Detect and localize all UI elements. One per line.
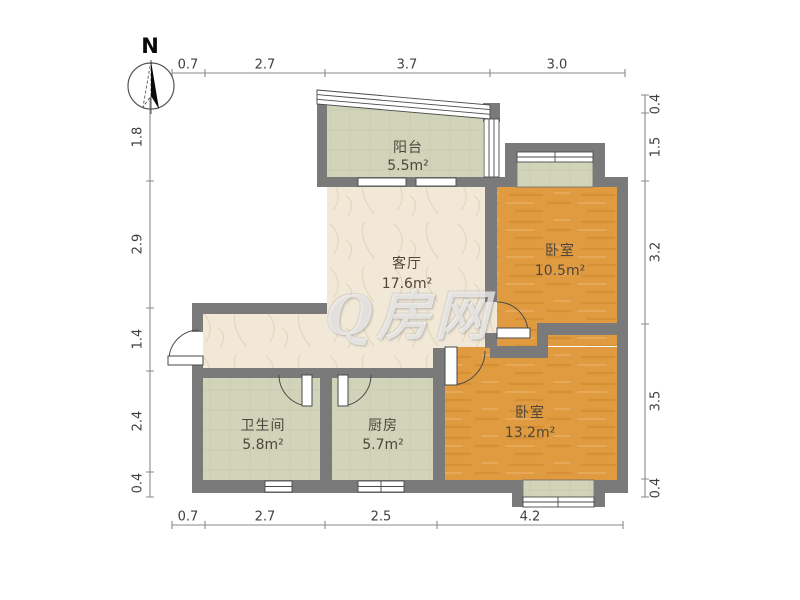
dim-bottom-1: 2.7: [255, 510, 276, 525]
dim-top-2: 3.7: [397, 58, 418, 73]
room-label-kitchen: 厨房: [368, 415, 398, 435]
dim-bottom-0: 0.7: [178, 510, 199, 525]
dim-right-3: 3.5: [649, 391, 664, 412]
room-area-living: 17.6m²: [382, 276, 432, 292]
room-area-bedroom2: 13.2m²: [505, 425, 555, 441]
room-area-balcony: 5.5m²: [387, 158, 429, 174]
compass-needle-black: [151, 61, 159, 109]
dim-right-1: 1.5: [649, 137, 664, 158]
dim-bottom-2: 2.5: [371, 510, 392, 525]
dim-bottom-3: 4.2: [520, 510, 541, 525]
kitchen-window: [358, 481, 404, 492]
entry-door: [168, 330, 203, 365]
dim-right-2: 3.2: [649, 242, 664, 263]
dim-bottom-line: [172, 521, 623, 529]
room-label-bathroom: 卫生间: [241, 415, 286, 435]
balcony-opening-left: [358, 178, 406, 186]
room-label-living: 客厅: [392, 253, 422, 273]
dim-right-4: 0.4: [649, 478, 664, 499]
dim-top-1: 2.7: [255, 58, 276, 73]
bedroom1-bay-window: [517, 152, 593, 162]
bedroom2-bay-window: [523, 497, 594, 507]
dim-left-line: [146, 94, 154, 497]
dim-left-0: 1.8: [131, 127, 146, 148]
dim-left-2: 1.4: [131, 329, 146, 350]
room-label-bedroom1: 卧室: [545, 240, 575, 260]
room-label-balcony: 阳台: [393, 137, 423, 157]
dim-top-0: 0.7: [178, 58, 199, 73]
dim-left-4: 0.4: [131, 473, 146, 494]
dim-right-0: 0.4: [649, 94, 664, 115]
balcony-opening-right: [416, 178, 456, 186]
dim-top-3: 3.0: [547, 58, 568, 73]
compass: [128, 60, 174, 114]
bay2-sill: [523, 480, 594, 499]
room-area-bedroom1: 10.5m²: [535, 263, 585, 279]
room-area-bathroom: 5.8m²: [242, 437, 284, 453]
dim-left-3: 2.4: [131, 411, 146, 432]
north-label: N: [141, 34, 159, 58]
room-area-kitchen: 5.7m²: [362, 437, 404, 453]
dim-left-1: 2.9: [131, 234, 146, 255]
balcony-side-window: [484, 119, 499, 177]
room-label-bedroom2: 卧室: [515, 402, 545, 422]
bay1-sill: [517, 160, 593, 187]
bathroom-window: [265, 481, 292, 492]
floor-plan-page: N Q房网 阳台 5.5m² 客厅 17.6m² 卧室 10.5m² 卧室 13…: [0, 0, 800, 600]
